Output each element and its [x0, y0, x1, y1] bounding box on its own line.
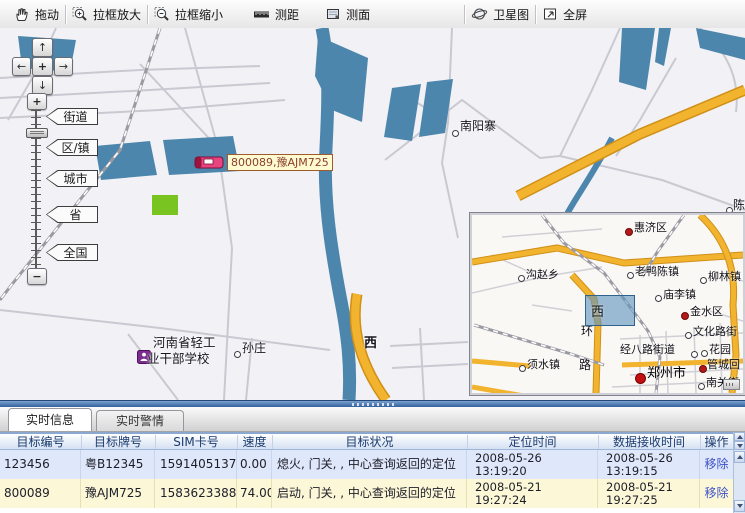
col-header-plate[interactable]: 目标牌号 [81, 435, 156, 449]
scroll-up-button[interactable] [734, 451, 745, 463]
ring-road-label-1: 环 [581, 325, 593, 337]
zoom-out-box-label: 拉框缩小 [175, 6, 223, 23]
place-marker [518, 275, 525, 282]
school-label-line1: 河南省轻工 [153, 336, 216, 349]
minimap-label: 须水镇 [527, 359, 560, 371]
measure-distance-label: 测距 [275, 6, 299, 23]
table-header: 目标编号 目标牌号 SIM卡号 速度 目标状况 定位时间 数据接收时间 操作 [0, 432, 733, 450]
satellite-icon [471, 6, 488, 22]
place-marker [701, 350, 708, 357]
minimap-label: 花园 [709, 344, 731, 356]
place-marker [700, 277, 707, 284]
road-label-west: 西 [364, 337, 377, 350]
water-bodies [18, 28, 745, 180]
zoom-in-box-label: 拉框放大 [93, 6, 141, 23]
measure-area-button[interactable]: 测面 [319, 3, 376, 26]
minimap-label-zhengzhou: 郑州市 [647, 368, 686, 380]
triangle-up-icon [737, 455, 743, 459]
cell-speed: 74.00 [237, 479, 272, 508]
minimap-label: 沟赵乡 [526, 269, 559, 281]
cell-status: 熄火, 门关, , 中心查询返回的定位 [272, 450, 467, 479]
cell-sim: 15836233884 [155, 479, 237, 508]
measure-area-label: 测面 [346, 6, 370, 23]
cell-status: 启动, 门关, , 中心查询返回的定位 [272, 479, 467, 508]
fullscreen-label: 全屏 [563, 6, 587, 23]
school-label-line2: 业干部学校 [147, 352, 210, 365]
place-marker [685, 332, 692, 339]
horizontal-splitter[interactable] [0, 400, 745, 407]
loc-time: 19:27:24 [475, 494, 597, 507]
area-icon [325, 6, 341, 22]
minimap-label: 经八路街道 [620, 344, 675, 356]
triangle-up-icon [737, 435, 743, 439]
minimap-label: 庙李镇 [663, 289, 696, 301]
vehicle-marker[interactable] [195, 157, 223, 168]
cell-loc-time: 2008-05-21 19:27:24 [467, 479, 598, 508]
viewport-west-label: 西 [591, 301, 604, 320]
place-marker [627, 272, 634, 279]
measure-distance-button[interactable]: 测距 [247, 3, 305, 26]
zoom-in-box-button[interactable]: 拉框放大 [66, 3, 147, 26]
zoom-slider-thumb[interactable] [26, 128, 48, 138]
remove-link[interactable]: 移除 [704, 457, 728, 471]
scroll-mini-up-button[interactable] [734, 432, 745, 441]
zoom-level-street[interactable]: 街道 [46, 108, 98, 125]
drag-button[interactable]: 拖动 [8, 3, 65, 26]
pan-right-button[interactable]: → [54, 57, 73, 76]
fullscreen-button[interactable]: 全屏 [536, 3, 593, 26]
satellite-map-button[interactable]: 卫星图 [465, 3, 535, 26]
col-header-recv-time[interactable]: 数据接收时间 [598, 435, 701, 449]
fullscreen-icon [542, 6, 558, 22]
place-marker [452, 130, 459, 137]
triangle-down-icon [737, 504, 743, 508]
cell-recv-time: 2008-05-26 13:19:15 [598, 450, 700, 479]
col-header-speed[interactable]: 速度 [237, 435, 273, 449]
place-label-chenzhai: 陈砦 [733, 199, 745, 212]
cell-target-id: 800089 [0, 479, 81, 508]
tab-realtime-alarm[interactable]: 实时警情 [96, 410, 184, 431]
district-dot [699, 365, 707, 373]
col-header-loc-time[interactable]: 定位时间 [467, 435, 599, 449]
zoom-out-button[interactable]: − [27, 268, 47, 285]
minimap-label: 管城回 [707, 359, 740, 371]
cell-recv-time: 2008-05-21 19:27:25 [598, 479, 700, 508]
table-row[interactable]: 123456 粤B12345 15914051378 0.00 熄火, 门关, … [0, 450, 733, 479]
vehicle-tag[interactable]: 800089,豫AJM725 [227, 154, 333, 171]
satellite-map-label: 卫星图 [493, 6, 529, 23]
col-header-status[interactable]: 目标状况 [272, 435, 468, 449]
cell-action: 移除 [700, 479, 733, 508]
realtime-info-table: 目标编号 目标牌号 SIM卡号 速度 目标状况 定位时间 数据接收时间 操作 1… [0, 432, 745, 513]
green-area [152, 195, 178, 215]
zoom-level-nation[interactable]: 全国 [46, 244, 98, 261]
table-scrollbar[interactable] [733, 432, 745, 513]
minimap-resize-grip[interactable] [723, 379, 740, 390]
place-label-nanyangzhai: 南阳寨 [460, 120, 496, 133]
scroll-down-button[interactable] [734, 500, 745, 512]
cell-speed: 0.00 [237, 450, 272, 479]
place-marker [698, 383, 705, 390]
place-marker [655, 295, 662, 302]
minimap-label: 老鸭陈镇 [635, 266, 679, 278]
pan-center-button[interactable]: + [32, 57, 53, 76]
place-label-sunzhuang: 孙庄 [242, 342, 266, 355]
zoom-in-button[interactable]: + [27, 93, 47, 110]
pan-up-button[interactable]: ↑ [32, 38, 53, 57]
place-marker [234, 351, 241, 358]
minimap-label: 文化路街 [693, 326, 737, 338]
district-dot [625, 228, 633, 236]
place-marker [519, 365, 526, 372]
drag-label: 拖动 [35, 6, 59, 23]
toolbar: 拖动 拉框放大 拉框缩小 测距 测面 卫星图 全屏 [0, 0, 745, 29]
zoom-level-province[interactable]: 省 [46, 206, 98, 223]
zoom-level-district[interactable]: 区/镇 [46, 139, 98, 156]
bottom-tabbar: 实时信息 实时警情 [0, 407, 745, 432]
place-marker [691, 351, 698, 358]
ring-road-label-2: 路 [579, 359, 591, 371]
cell-plate: 豫AJM725 [81, 479, 155, 508]
cell-plate: 粤B12345 [81, 450, 155, 479]
recv-time: 13:19:15 [606, 465, 699, 478]
cell-action: 移除 [700, 450, 733, 479]
col-header-sim[interactable]: SIM卡号 [155, 435, 238, 449]
col-header-target-id[interactable]: 目标编号 [0, 435, 82, 449]
minimap-label: 柳林镇 [708, 271, 741, 283]
cell-sim: 15914051378 [155, 450, 237, 479]
zoom-level-city[interactable]: 城市 [46, 170, 98, 187]
recv-time: 19:27:25 [606, 494, 699, 507]
city-dot [635, 373, 646, 384]
gps-tracking-window: 拖动 拉框放大 拉框缩小 测距 测面 卫星图 全屏 [0, 0, 745, 513]
minimap-viewport-box[interactable]: 西 [585, 295, 635, 326]
tab-realtime-info[interactable]: 实时信息 [8, 408, 92, 431]
table-row[interactable]: 800089 豫AJM725 15836233884 74.00 启动, 门关,… [0, 479, 733, 508]
hand-icon [14, 6, 30, 22]
scroll-mini-down-button[interactable] [734, 441, 745, 450]
zoom-out-icon [154, 6, 170, 22]
pan-left-button[interactable]: ← [12, 57, 31, 76]
loc-time: 13:19:20 [475, 465, 597, 478]
remove-link[interactable]: 移除 [704, 486, 728, 500]
col-header-action[interactable]: 操作 [700, 435, 733, 449]
cell-target-id: 123456 [0, 450, 81, 479]
minimap-label: 金水区 [690, 306, 723, 318]
district-dot [681, 312, 689, 320]
zoom-out-box-button[interactable]: 拉框缩小 [148, 3, 229, 26]
cell-loc-time: 2008-05-26 13:19:20 [467, 450, 598, 479]
zoom-in-icon [72, 6, 88, 22]
minimap-label: 惠济区 [634, 222, 667, 234]
ruler-icon [253, 6, 270, 22]
overview-minimap[interactable]: 惠济区 沟赵乡 老鸭陈镇 柳林镇 庙李镇 金水区 文化路街 经八路街道 花园 管… [470, 213, 745, 395]
triangle-down-icon [737, 444, 743, 448]
splitter-grip [352, 403, 396, 406]
